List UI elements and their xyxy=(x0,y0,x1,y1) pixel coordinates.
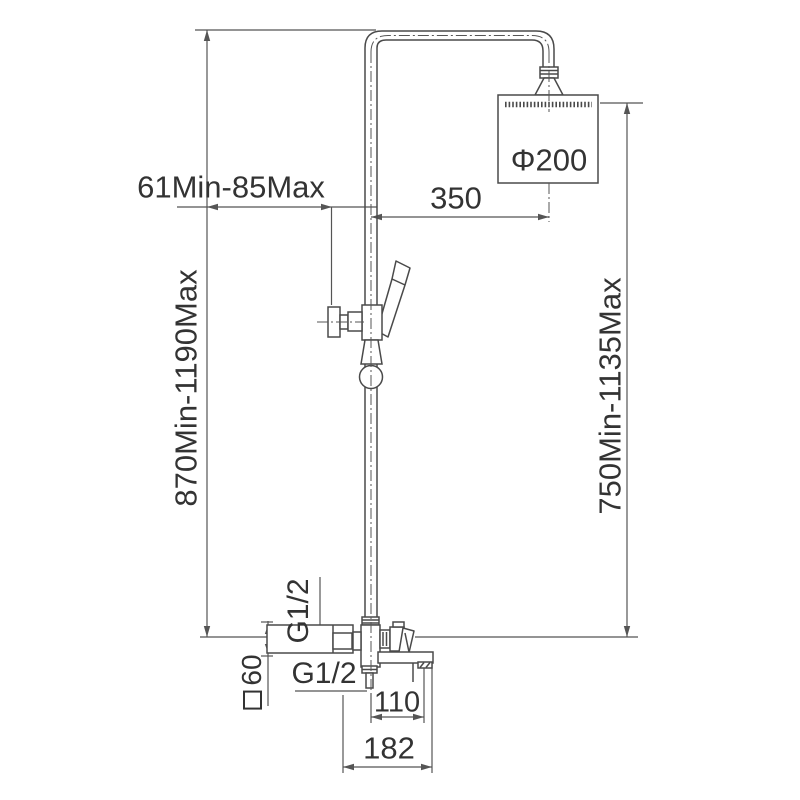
body-connector xyxy=(353,632,361,650)
dim-label-body-square: 60 xyxy=(238,654,266,709)
technical-drawing-canvas xyxy=(0,0,800,800)
dim-label-wall-offset: 61Min-85Max xyxy=(137,172,325,203)
dim-label-head-height: 750Min-1135Max xyxy=(595,277,626,514)
hand-shower xyxy=(328,261,410,389)
dim-label-thread-upper: G1/2 xyxy=(284,578,314,643)
overall-height-value: 870Min-1190Max xyxy=(171,269,202,506)
shower-dimension-drawing: 61Min-85Max 350 Φ200 870Min-1190Max 750M… xyxy=(0,0,800,800)
handle-top-tab xyxy=(393,622,404,627)
body-inner-step xyxy=(333,633,352,649)
thread-upper-value: G1/2 xyxy=(284,578,314,643)
dim-label-outlet-spacing: 110 xyxy=(374,689,420,718)
outlet-pipe xyxy=(366,673,373,688)
wall-offset-value: 61Min-85Max xyxy=(137,172,325,203)
slider-bracket xyxy=(362,305,382,340)
body-square-value: 60 xyxy=(238,654,266,685)
dim-label-arm-reach: 350 xyxy=(430,183,482,214)
body-width-value: 182 xyxy=(363,733,415,764)
arm-reach-value: 350 xyxy=(430,183,482,214)
thread-lower-value: G1/2 xyxy=(291,659,356,689)
dim-label-head-diameter: Φ200 xyxy=(511,145,587,176)
cartridge-stub xyxy=(380,630,390,648)
arm-centerline xyxy=(371,36,549,53)
dim-label-overall-height: 870Min-1190Max xyxy=(171,269,202,506)
fixture xyxy=(267,31,598,688)
head-height-value: 750Min-1135Max xyxy=(595,277,626,514)
outlet-spacing-value: 110 xyxy=(374,689,420,718)
square-section-icon xyxy=(243,691,262,710)
head-diameter-value: Φ200 xyxy=(511,145,587,176)
dim-label-body-width: 182 xyxy=(363,733,415,764)
dim-label-thread-lower: G1/2 xyxy=(291,659,356,689)
